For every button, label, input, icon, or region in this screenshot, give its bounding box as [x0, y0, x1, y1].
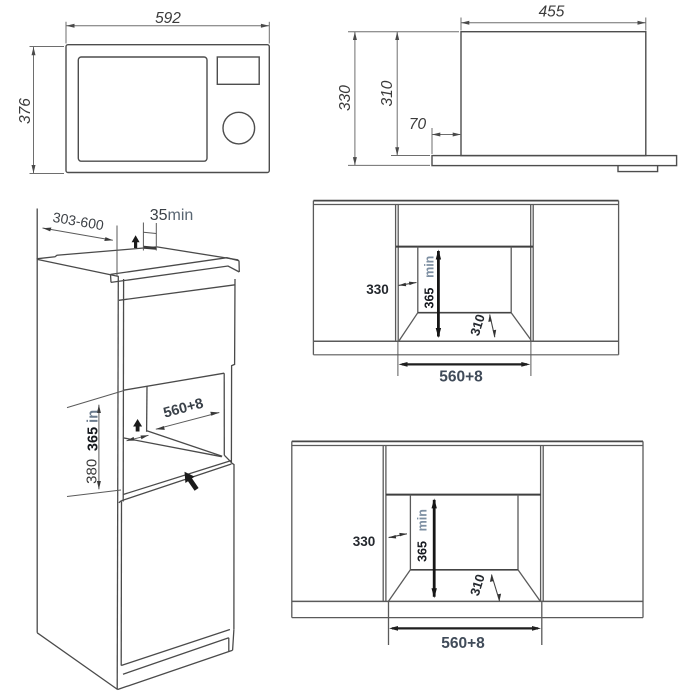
- svg-text:592: 592: [155, 10, 181, 27]
- svg-text:365 in: 365 in: [85, 410, 101, 451]
- svg-text:376: 376: [17, 98, 34, 124]
- svg-text:560+8: 560+8: [441, 635, 485, 652]
- svg-text:560+8: 560+8: [439, 369, 483, 386]
- svg-text:365 min: 365 min: [415, 509, 429, 562]
- svg-text:365 min: 365 min: [422, 256, 436, 309]
- svg-text:380: 380: [83, 459, 100, 484]
- svg-text:70: 70: [409, 116, 427, 133]
- svg-text:330: 330: [353, 534, 376, 549]
- svg-text:455: 455: [539, 4, 565, 21]
- svg-text:35min: 35min: [150, 207, 194, 224]
- svg-text:303-600: 303-600: [52, 209, 106, 233]
- svg-text:310: 310: [467, 312, 488, 337]
- svg-text:310: 310: [379, 80, 396, 106]
- svg-text:310: 310: [467, 572, 488, 597]
- svg-text:330: 330: [366, 282, 389, 297]
- svg-text:330: 330: [337, 85, 354, 111]
